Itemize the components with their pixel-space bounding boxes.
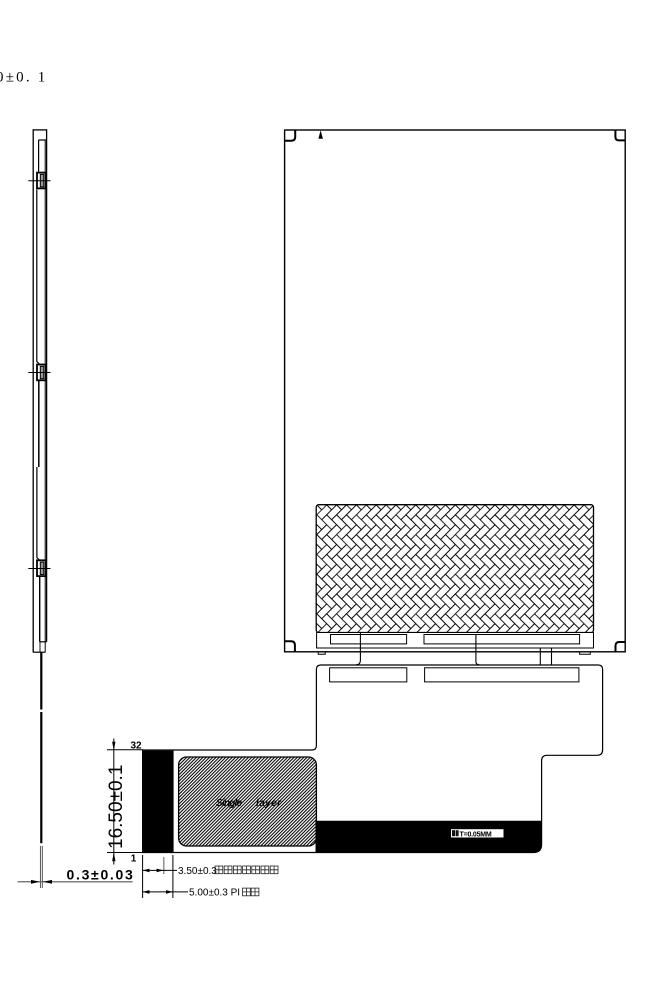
svg-text:1: 1: [131, 854, 137, 865]
svg-text:3.50±0.3: 3.50±0.3: [178, 866, 217, 877]
svg-text:layer: layer: [256, 798, 282, 809]
svg-text:5.00±0.3 PI: 5.00±0.3 PI: [189, 888, 240, 899]
svg-text:32: 32: [131, 741, 143, 752]
svg-text:16.50±0.1: 16.50±0.1: [106, 765, 127, 849]
svg-text:T=0.05MM: T=0.05MM: [460, 831, 492, 838]
svg-text:0.3±0.03: 0.3±0.03: [67, 867, 135, 883]
svg-text:0±0. 1: 0±0. 1: [0, 69, 47, 85]
svg-text:Single: Single: [216, 798, 242, 809]
